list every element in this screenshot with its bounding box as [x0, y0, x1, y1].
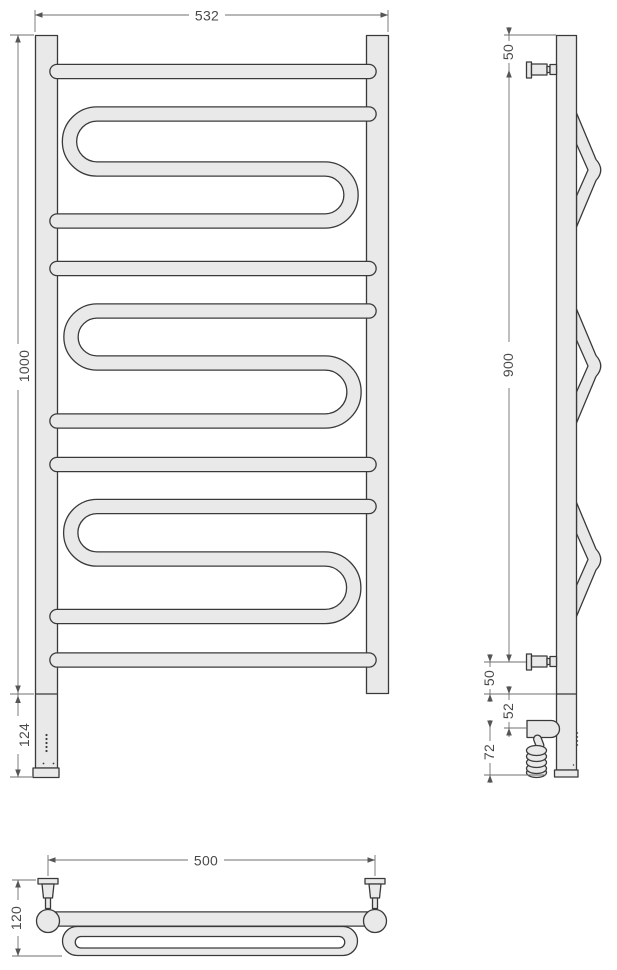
front-right-post — [367, 36, 389, 694]
bracket-nut — [550, 65, 557, 75]
dim-label-side-bracket-span: 900 — [500, 353, 516, 377]
side-coil-profiles — [577, 113, 601, 617]
front-serpentine-coils — [57, 114, 369, 617]
technical-drawing-canvas: 532 1000 124 — [0, 0, 617, 970]
plan-post-left — [37, 910, 60, 933]
dim-label-side-heater-offset: 52 — [500, 703, 516, 719]
dim-front-width: 532 — [35, 7, 388, 32]
bracket-flange — [38, 879, 58, 885]
dim-side-bracket-span: 900 — [484, 342, 526, 662]
dim-label-side-bottom-offset: 50 — [481, 670, 497, 686]
bracket-flange — [527, 62, 532, 78]
bracket-body — [369, 884, 381, 898]
power-cable-spiral — [527, 746, 547, 778]
plan-bracket-right — [365, 879, 385, 909]
dim-label-side-top-offset: 50 — [500, 44, 516, 60]
dim-label-plan-bracket-spacing: 500 — [194, 853, 218, 869]
plan-coil-loop — [63, 927, 358, 956]
bracket-body — [532, 656, 548, 667]
bracket-neck — [46, 898, 51, 909]
dim-label-front-heater-height: 124 — [16, 723, 32, 747]
bracket-body — [42, 884, 54, 898]
wall-bracket-bottom — [527, 654, 557, 670]
coil-profile-2 — [577, 309, 601, 423]
plan-bracket-left — [38, 879, 58, 909]
bracket-flange — [365, 879, 385, 885]
plan-post-right — [364, 910, 387, 933]
side-end-cap — [555, 770, 579, 777]
plan-view: 500 120 — [8, 852, 387, 956]
wall-bracket-top — [527, 62, 557, 78]
dim-plan-bracket-spacing: 500 — [48, 852, 375, 876]
dim-label-front-width: 532 — [195, 8, 219, 24]
bracket-neck — [373, 898, 378, 909]
coil-profile-1 — [577, 113, 601, 227]
technical-drawing-page: 532 1000 124 — [0, 0, 617, 970]
bracket-body — [532, 64, 548, 75]
coil-profile-3 — [577, 503, 601, 617]
dim-front-height: 1000 124 — [10, 35, 34, 777]
bracket-flange — [527, 654, 532, 670]
side-post — [557, 36, 577, 771]
heater-end-cap — [33, 768, 59, 778]
heater-terminal-box — [527, 721, 560, 738]
dim-label-front-height: 1000 — [16, 350, 32, 382]
dim-label-side-cable-offset: 72 — [481, 744, 497, 760]
dim-label-plan-depth: 120 — [8, 906, 24, 930]
bracket-nut — [550, 657, 557, 667]
front-view: 532 1000 124 — [10, 7, 389, 778]
side-view: 50 900 50 52 — [481, 27, 601, 783]
